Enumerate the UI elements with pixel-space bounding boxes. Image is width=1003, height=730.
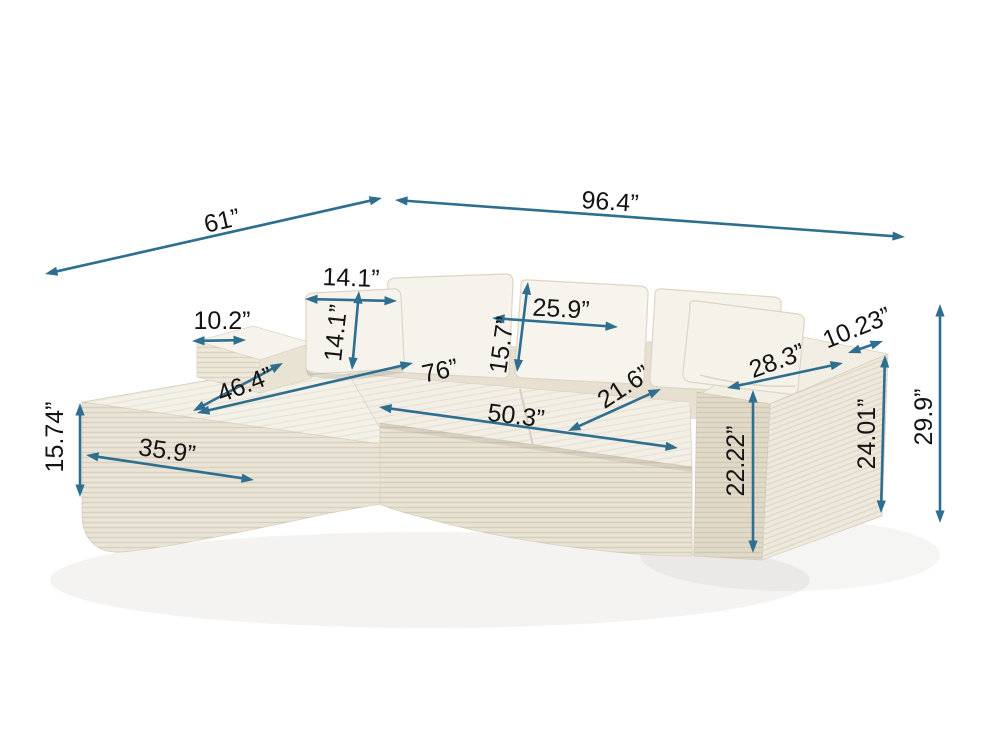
dimension-armrest-width: 10.23” <box>819 302 895 355</box>
dimension-armrest-left-width: 10.2” <box>192 307 250 345</box>
dimension-label-pillow-height: 14.1” <box>319 303 353 363</box>
dimension-line <box>201 340 238 341</box>
arrowhead-icon <box>395 196 408 205</box>
sofa-dimension-illustration: 61”96.4”14.1”14.1”10.2”25.9”15.7”46.4”76… <box>0 0 1003 730</box>
dimension-line <box>404 201 897 237</box>
dimension-width-overall: 96.4” <box>395 186 905 241</box>
arrowhead-icon <box>892 232 905 241</box>
arrowhead-icon <box>935 304 944 317</box>
dimension-line <box>314 299 389 301</box>
dimension-label-overall-height: 29.9” <box>910 389 938 446</box>
dimension-label-chaise-height: 15.74” <box>41 402 69 473</box>
dimension-label-width-overall: 96.4” <box>581 186 640 218</box>
arrowhead-icon <box>870 341 883 350</box>
dimension-label-depth-left-overall: 61” <box>201 203 243 238</box>
dimension-label-pillow-width: 14.1” <box>322 263 380 293</box>
arrowhead-icon <box>935 511 944 524</box>
arrowhead-icon <box>45 267 58 276</box>
dimension-label-armrest-height: 24.01” <box>853 399 881 470</box>
dimension-overall-height: 29.9” <box>910 304 945 523</box>
dimension-label-armrest-left-width: 10.2” <box>194 307 251 335</box>
dimension-label-seat-front-height: 22.22” <box>722 426 750 497</box>
dimension-chaise-height: 15.74” <box>41 402 85 497</box>
dimension-label-back-cushion-width: 25.9” <box>532 294 590 325</box>
arrowhead-icon <box>369 196 382 205</box>
product-dimension-diagram: 61”96.4”14.1”14.1”10.2”25.9”15.7”46.4”76… <box>0 0 1003 730</box>
